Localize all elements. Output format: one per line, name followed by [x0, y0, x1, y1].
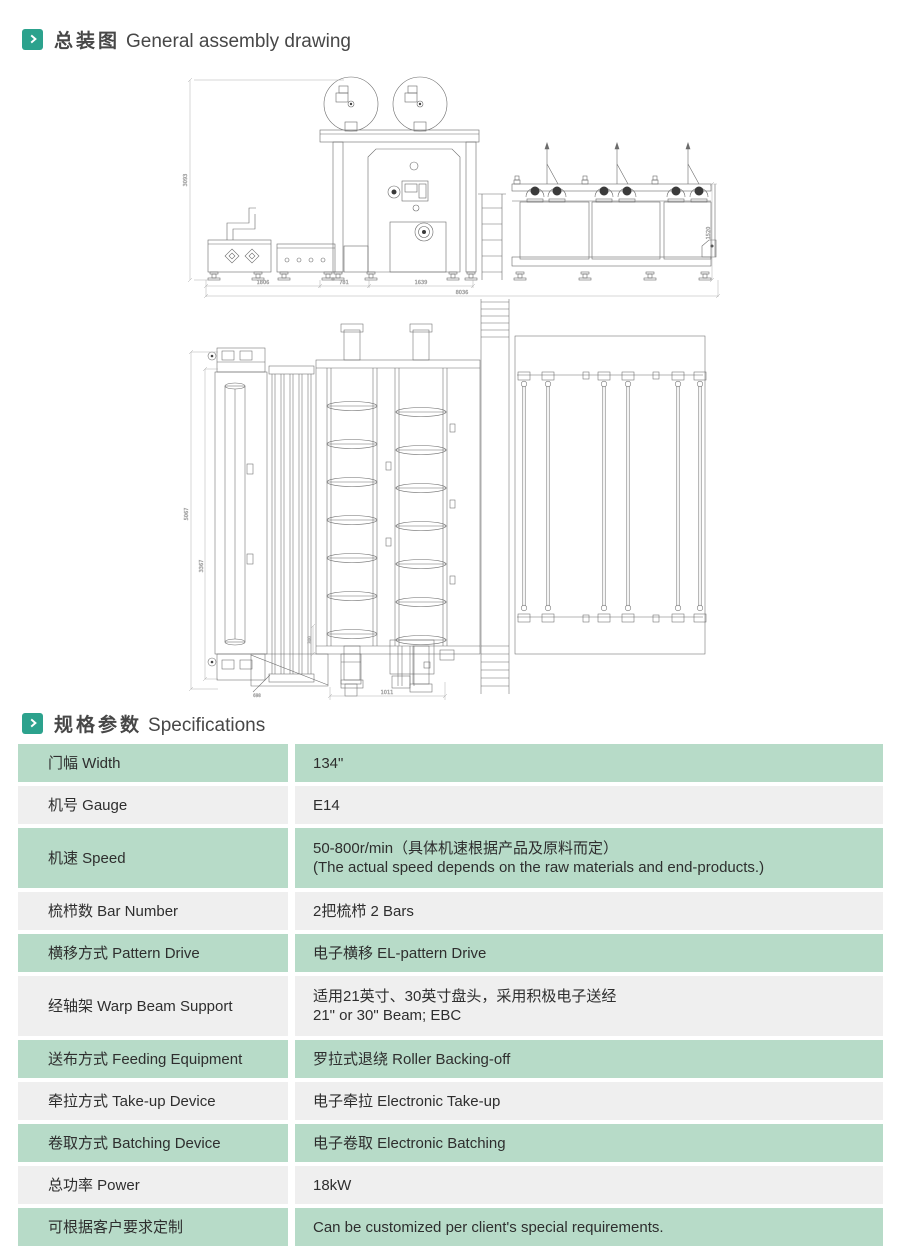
dim-seg1: 1806: [257, 280, 270, 286]
creel: [512, 143, 716, 266]
dim-seg2: 781: [339, 280, 349, 286]
spec-value: 适用21英寸、30英寸盘头，采用积极电子送经21" or 30" Beam; E…: [295, 976, 883, 1036]
table-row: 可根据客户要求定制 Can be customized per client's…: [18, 1208, 883, 1246]
section-title: 规格参数Specifications: [54, 710, 265, 737]
spec-label: 横移方式 Pattern Drive: [18, 934, 288, 972]
spec-label: 经轴架 Warp Beam Support: [18, 976, 288, 1036]
catalog-page: 总装图General assembly drawing: [0, 0, 901, 1246]
elevation-view: [208, 77, 716, 280]
creel-roller: [518, 372, 706, 622]
table-row: 送布方式 Feeding Equipment 罗拉式退绕 Roller Back…: [18, 1040, 883, 1078]
plan-view: [208, 299, 706, 696]
auxiliary-unit: [277, 244, 335, 272]
table-row: 横移方式 Pattern Drive 电子横移 EL-pattern Drive: [18, 934, 883, 972]
section-title-zh: 总装图: [54, 31, 120, 52]
ladder: [478, 194, 506, 280]
table-row: 牵拉方式 Take-up Device 电子牵拉 Electronic Take…: [18, 1082, 883, 1120]
table-row: 梳栉数 Bar Number 2把梳栉 2 Bars: [18, 892, 883, 930]
spec-label: 送布方式 Feeding Equipment: [18, 1040, 288, 1078]
spec-value: Can be customized per client's special r…: [295, 1208, 883, 1246]
walkway-ladders: [481, 299, 509, 694]
section-title-en: General assembly drawing: [126, 31, 351, 52]
dim-overall-height: 3093: [183, 174, 189, 187]
spec-value: 罗拉式退绕 Roller Backing-off: [295, 1040, 883, 1078]
table-row: 卷取方式 Batching Device 电子卷取 Electronic Bat…: [18, 1124, 883, 1162]
specifications-table: 门幅 Width 134" 机号 Gauge E14 机速 Speed 50-8…: [18, 744, 883, 1246]
spec-value: 电子横移 EL-pattern Drive: [295, 934, 883, 972]
section-title-en: Specifications: [148, 715, 265, 736]
section-marker-icon: [22, 29, 43, 50]
section-marker-icon: [22, 713, 43, 734]
spec-value: 134": [295, 744, 883, 782]
spec-value: 50-800r/min（具体机速根据产品及原料而定）(The actual sp…: [295, 828, 883, 888]
table-row: 机号 Gauge E14: [18, 786, 883, 824]
main-machine: [320, 77, 479, 272]
section-title-zh: 规格参数: [54, 715, 142, 736]
chevron-right-icon: [27, 717, 39, 729]
spec-value: 电子卷取 Electronic Batching: [295, 1124, 883, 1162]
dim-plan-note: 698: [253, 693, 261, 698]
section-title: 总装图General assembly drawing: [54, 26, 351, 53]
spec-value: 电子牵拉 Electronic Take-up: [295, 1082, 883, 1120]
dim-plan-depth-inner: 3367: [199, 560, 205, 573]
feeding-unit: [208, 208, 271, 272]
spec-label: 机速 Speed: [18, 828, 288, 888]
dim-plan-front: 1011: [381, 690, 394, 696]
chevron-right-icon: [27, 33, 39, 45]
assembly-drawing: 3093 1520 1806 781 1639 8036: [0, 64, 901, 704]
bottom-equipment: [251, 640, 454, 696]
spec-label: 机号 Gauge: [18, 786, 288, 824]
dim-creel-height: 1520: [706, 227, 712, 240]
dim-plan-offset: 300: [307, 636, 312, 644]
spec-label: 梳栉数 Bar Number: [18, 892, 288, 930]
section-header-assembly: 总装图General assembly drawing: [22, 28, 901, 50]
spec-label: 门幅 Width: [18, 744, 288, 782]
spec-value: E14: [295, 786, 883, 824]
dim-seg3: 1639: [415, 280, 428, 286]
dim-plan-depth-outer: 5067: [184, 508, 190, 521]
elevation-dimensions: 3093 1520 1806 781 1639 8036: [183, 78, 720, 298]
table-row: 门幅 Width 134": [18, 744, 883, 782]
creel-plan: [515, 336, 706, 654]
plan-dimensions: 5067 3367 300 1011 698: [184, 350, 447, 700]
spec-value: 2把梳栉 2 Bars: [295, 892, 883, 930]
creel-posts: [545, 143, 699, 184]
assembly-drawing-svg: 3093 1520 1806 781 1639 8036: [165, 64, 895, 704]
jack-stands: [514, 176, 658, 184]
dim-total-length: 8036: [456, 290, 469, 296]
knitting-section: [316, 324, 480, 692]
table-row: 总功率 Power 18kW: [18, 1166, 883, 1204]
batching-roller: [208, 348, 267, 680]
spec-label: 牵拉方式 Take-up Device: [18, 1082, 288, 1120]
spec-label: 总功率 Power: [18, 1166, 288, 1204]
table-row: 经轴架 Warp Beam Support 适用21英寸、30英寸盘头，采用积极…: [18, 976, 883, 1036]
spec-label: 卷取方式 Batching Device: [18, 1124, 288, 1162]
machine-feet: [208, 272, 711, 280]
spec-label: 可根据客户要求定制: [18, 1208, 288, 1246]
guide-rollers: [269, 366, 314, 682]
section-header-specs: 规格参数Specifications: [22, 712, 901, 734]
spec-value: 18kW: [295, 1166, 883, 1204]
table-row: 机速 Speed 50-800r/min（具体机速根据产品及原料而定）(The …: [18, 828, 883, 888]
